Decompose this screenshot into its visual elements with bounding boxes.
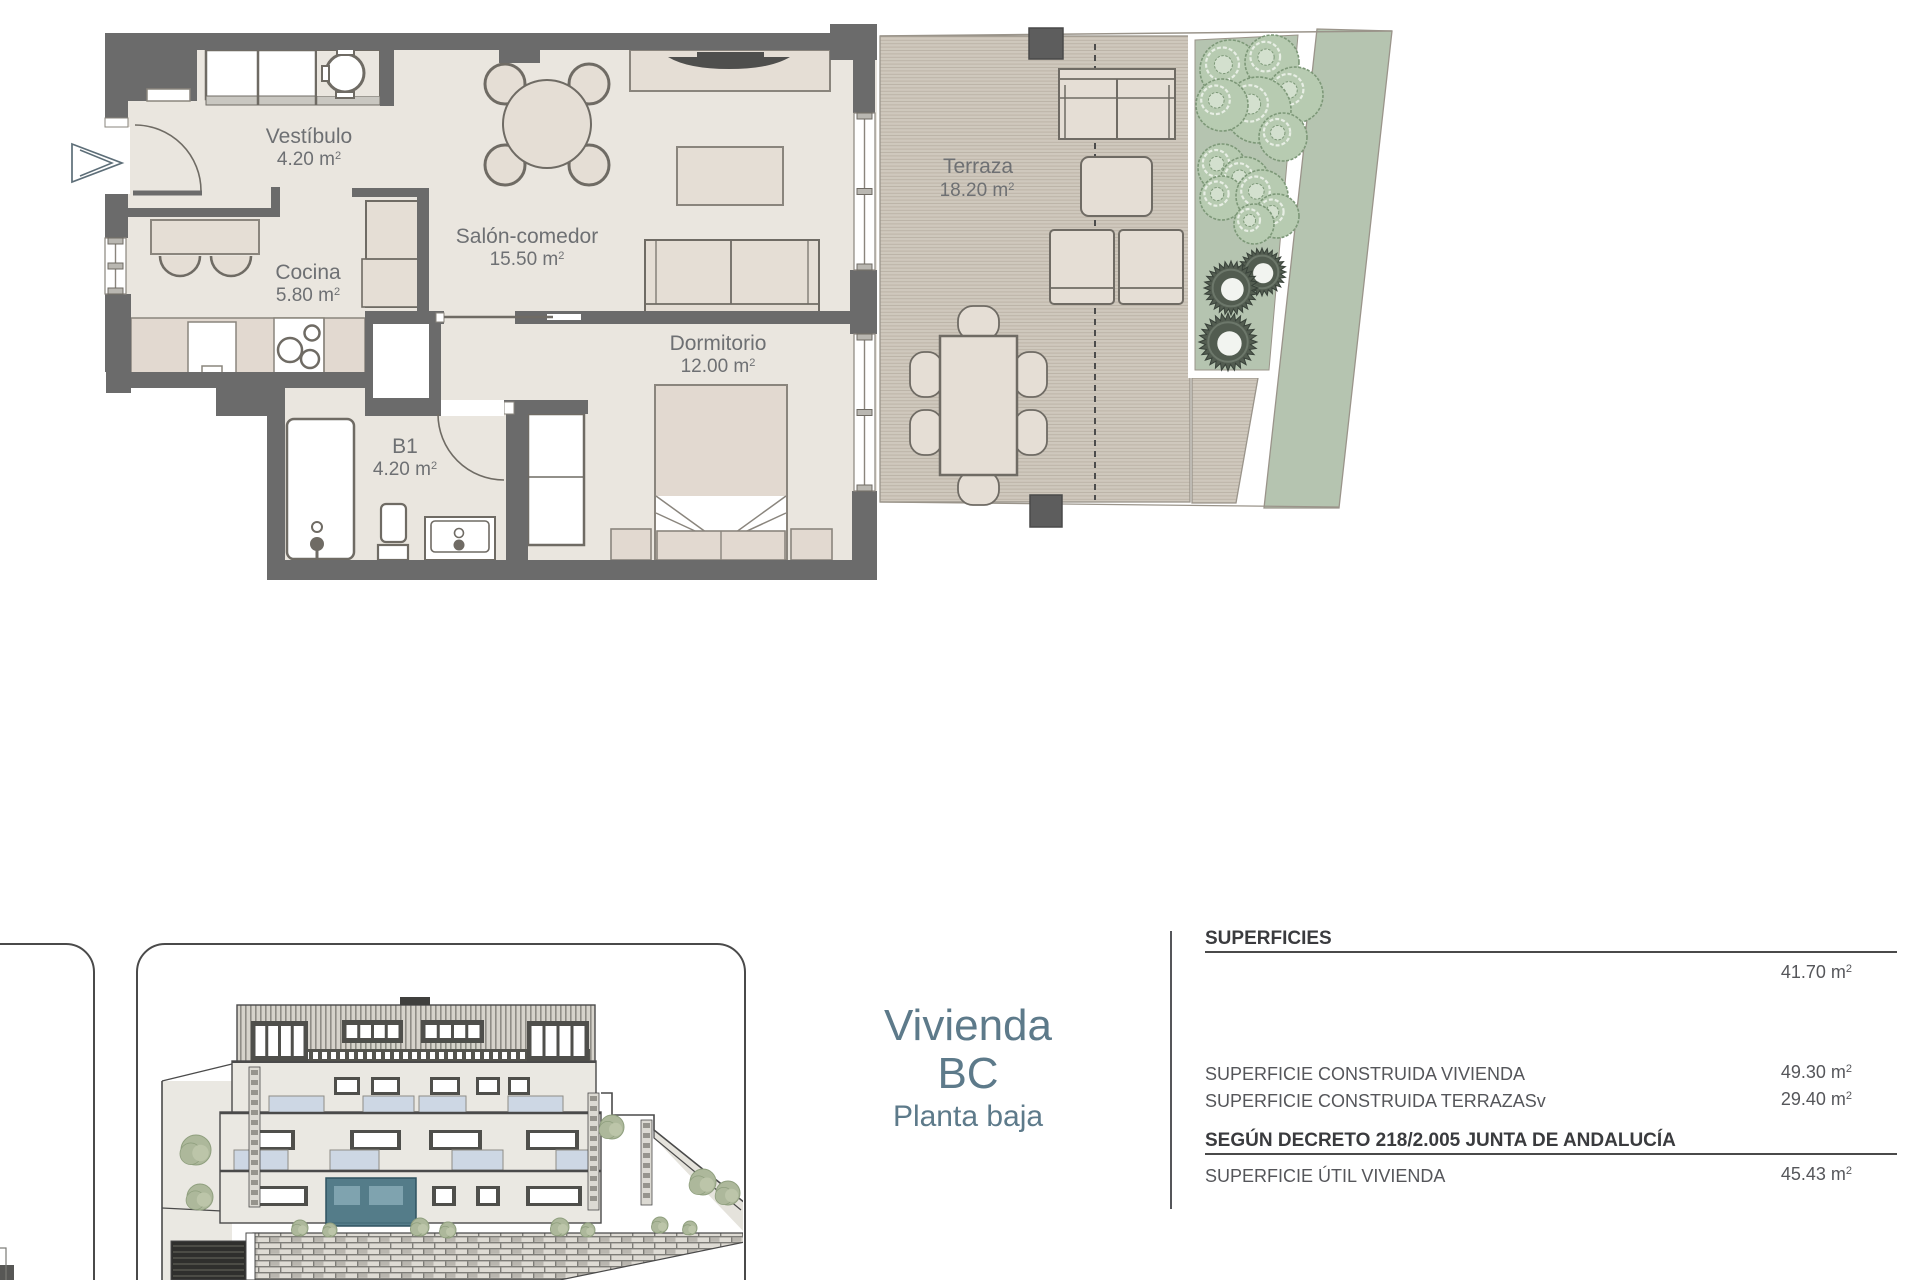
- svg-text:Vestíbulo: Vestíbulo: [266, 125, 352, 148]
- svg-text:49.30 m2: 49.30 m2: [1781, 1062, 1852, 1082]
- svg-text:Vivienda: Vivienda: [884, 1001, 1053, 1050]
- svg-text:Planta baja: Planta baja: [893, 1100, 1043, 1133]
- svg-text:4.20 m2: 4.20 m2: [373, 459, 437, 480]
- svg-text:B1: B1: [392, 435, 418, 458]
- svg-text:Cocina: Cocina: [275, 261, 341, 284]
- svg-text:Terraza: Terraza: [943, 155, 1013, 178]
- svg-text:5.80 m2: 5.80 m2: [276, 285, 340, 306]
- svg-text:4.20 m2: 4.20 m2: [277, 149, 341, 170]
- svg-text:41.70 m2: 41.70 m2: [1781, 962, 1852, 982]
- svg-text:Dormitorio: Dormitorio: [670, 332, 767, 355]
- svg-text:Salón-comedor: Salón-comedor: [456, 225, 598, 248]
- svg-text:12.00 m2: 12.00 m2: [681, 356, 756, 377]
- svg-text:45.43 m2: 45.43 m2: [1781, 1164, 1852, 1184]
- svg-text:SUPERFICIE ÚTIL VIVIENDA: SUPERFICIE ÚTIL VIVIENDA: [1205, 1165, 1445, 1186]
- svg-text:SEGÚN DECRETO 218/2.005 JUNTA: SEGÚN DECRETO 218/2.005 JUNTA DE ANDALUC…: [1205, 1129, 1676, 1151]
- svg-text:SUPERFICIE CONSTRUIDA TERRAZAS: SUPERFICIE CONSTRUIDA TERRAZASv: [1205, 1091, 1546, 1111]
- svg-text:29.40 m2: 29.40 m2: [1781, 1089, 1852, 1109]
- svg-text:15.50 m2: 15.50 m2: [490, 249, 565, 270]
- svg-text:SUPERFICIES: SUPERFICIES: [1205, 928, 1332, 949]
- svg-text:BC: BC: [937, 1049, 998, 1098]
- svg-text:18.20 m2: 18.20 m2: [940, 180, 1015, 201]
- svg-text:SUPERFICIE CONSTRUIDA VIVIENDA: SUPERFICIE CONSTRUIDA VIVIENDA: [1205, 1064, 1525, 1084]
